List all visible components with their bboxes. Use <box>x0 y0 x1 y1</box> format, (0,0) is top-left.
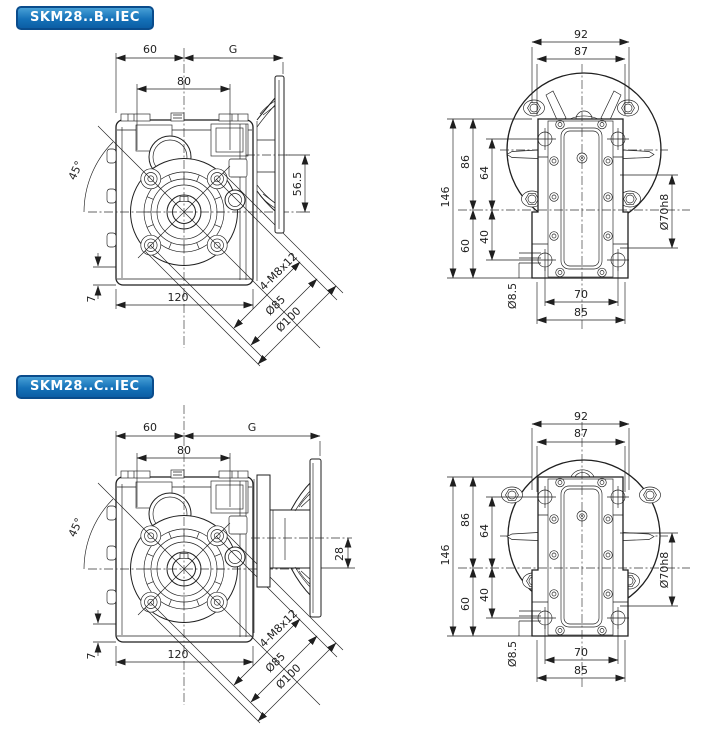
dim-top-width-b: 60 <box>143 43 157 56</box>
dim-axis-offset-c: 28 <box>333 547 346 561</box>
technical-drawing: 45° 7 120 4-M8x12 Ø85 Ø100 <box>0 0 725 738</box>
dim-hole-span-b: 80 <box>177 75 191 88</box>
dim-overall-width-b: 92 <box>574 28 588 41</box>
drawing-sheet: SKM28..B..IEC SKM28..C..IEC <box>0 0 725 738</box>
dim-top-width-c: 60 <box>143 421 157 434</box>
b-side-view: 56.5 60 G 80 <box>66 43 343 366</box>
c-front-view: 92 87 <box>439 410 690 689</box>
c-side-view: 28 60 G 80 <box>66 405 355 723</box>
dim-body-width-b: 87 <box>574 45 588 58</box>
dim-hole-span-c: 80 <box>177 444 191 457</box>
dim-overall-width-c: 92 <box>574 410 588 423</box>
dim-axis-offset-b: 56.5 <box>291 172 304 197</box>
b-front-view: 92 87 <box>439 28 690 331</box>
dim-motor-g-c: G <box>248 421 257 434</box>
dim-body-width-c: 87 <box>574 427 588 440</box>
dim-motor-g-b: G <box>229 43 238 56</box>
iec-flange-plate-b <box>275 76 284 233</box>
